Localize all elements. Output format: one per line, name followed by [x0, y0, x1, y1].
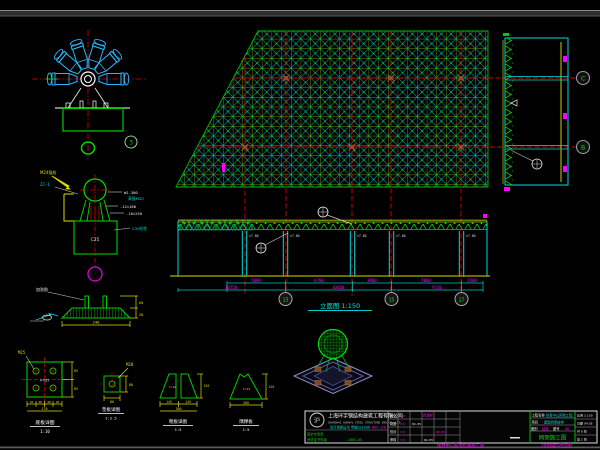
axis-bubble-label: 17 — [458, 298, 464, 304]
detail-scale: 1:5 — [175, 427, 182, 432]
detail-scale: 1:10 — [40, 429, 50, 434]
field-label: 工程名称 — [532, 413, 546, 418]
dim-label: 6700 — [314, 278, 324, 283]
window-bottom-edge — [0, 447, 600, 449]
level-label: ▽7.80 — [290, 234, 300, 238]
plate-center-label: 4-M25 — [40, 379, 50, 383]
drawing-title: 网架施工图 — [539, 434, 567, 442]
gusset-plate-2: t=12 260 120 隅撑板 1:5 — [230, 374, 274, 432]
pad-plate-detail: M20 80 80 垫板详图 1:2.5 — [98, 362, 134, 421]
base-plate-plan: 4-M25 M25 85 85 45 40 40 45 170 底板详图 1:1… — [18, 350, 78, 434]
leader-label: C30砼柱 — [132, 226, 147, 231]
footer-note: 体育中心网架结构施工图 — [437, 442, 484, 449]
window-top-edge — [0, 10, 600, 17]
dim-label: 10750 — [225, 285, 238, 290]
field-value: 结施 — [542, 426, 549, 431]
level-label: ▽7.80 — [466, 234, 476, 238]
dim-label: 120 — [204, 384, 210, 388]
ball-node-render — [319, 330, 348, 359]
thickness-label: t=12 — [169, 385, 176, 389]
field-label: 项目 — [532, 421, 539, 425]
pedestal — [63, 109, 123, 132]
dim-label: 40 — [38, 400, 42, 404]
detail-scale: 1:2.5 — [105, 416, 116, 421]
dim-label: 80 — [110, 400, 114, 404]
dim-label: 40 — [47, 400, 51, 404]
field-value: 体育中心网架工程 — [546, 413, 573, 418]
detail-title: 靴板详图 — [169, 418, 187, 425]
sign-label: 制图 — [390, 421, 396, 426]
pier-label: C25 — [91, 237, 100, 243]
leader-label: M24锚栓 — [40, 169, 57, 175]
footer-note: 2004年5月出图 — [541, 442, 572, 449]
dim-label: 170 — [42, 407, 48, 411]
sheet-info: 共 8 张 — [577, 429, 587, 434]
sign-name: ×× — [400, 430, 406, 434]
logo-glyph: 沪 — [314, 417, 320, 425]
level-label: ▽7.80 — [396, 234, 406, 238]
sign-date: 04.05 — [436, 430, 445, 434]
detail-title: 垫板详图 — [102, 406, 120, 413]
sheet-info: 比例 1:100 — [577, 413, 593, 418]
dim-label: 5800 — [251, 278, 261, 283]
leader-label: -10×250 — [126, 211, 143, 216]
axis-bubbles-right: C B — [577, 72, 590, 154]
dim-label: 300 — [176, 407, 182, 411]
dim-label: 145 — [166, 400, 172, 404]
elevation-title: 立面图 1:150 — [320, 301, 360, 310]
level-label: ▽7.80 — [249, 234, 259, 238]
dim-label: 45 — [56, 400, 60, 404]
thickness-label: t=12 — [243, 387, 250, 391]
field-value: 08 — [565, 427, 569, 431]
dim-label: 145 — [185, 400, 191, 404]
leader-label: M25 — [18, 350, 26, 355]
field-value: 屋面网架结构 — [544, 420, 564, 425]
dim-label: 60 — [139, 301, 143, 305]
cert-no: №04-118 — [372, 426, 386, 430]
support-3d-render — [294, 330, 372, 394]
level-label: ▽7.80 — [357, 234, 367, 238]
dim-label: 120 — [269, 385, 275, 389]
leader-label: 高强M20 — [128, 196, 144, 201]
sheet-info: 日期 04.05 — [577, 421, 593, 426]
cert-text: 设计资质证书 甲级021006 — [330, 425, 370, 430]
dim-label: 85 — [74, 369, 78, 373]
dim-label: 260 — [243, 401, 249, 405]
dim-label: 2100 — [467, 278, 477, 283]
dim-label: 240 — [93, 320, 101, 325]
cad-sheet: C B 3 — [0, 0, 600, 450]
side-section-detail — [503, 33, 568, 191]
sign-name: ×× — [400, 422, 406, 426]
dim-label: 7000 — [421, 278, 431, 283]
title-block: 沪 上海环宇钢结构建筑工程有限公司 SHANGHAI HUANYU STEEL … — [305, 411, 597, 443]
leader-label: -12×180 — [120, 204, 137, 209]
axis-bubble-label: 13 — [282, 298, 288, 304]
sign-name: ×× — [400, 438, 406, 442]
axis-bubble-label: C — [581, 76, 585, 83]
field-label: 图号 — [553, 426, 560, 431]
sign-date: 04.05 — [424, 438, 433, 442]
detail-title: 底板详图 — [35, 419, 54, 426]
detail-title: 隅撑板 — [239, 418, 253, 425]
dim-label: 10600 — [332, 285, 345, 290]
axis-bubble-label: 15 — [388, 298, 394, 304]
sign-date: 04.05 — [412, 422, 421, 426]
leader-label: WJ-300 — [124, 190, 138, 195]
base-plate-side-view: 加劲肋 60 20 240 — [30, 286, 143, 327]
sign-header: 会签栏 — [423, 413, 434, 418]
leader-label: ZJ-1 — [40, 182, 50, 187]
stamp-text: 资质证书甲级 — [307, 437, 327, 442]
stamp-date: 2004.05 — [348, 438, 362, 442]
dim-label: 80 — [129, 383, 133, 387]
dim-label: 3900 — [367, 278, 377, 283]
gusset-plate-1: t=12 145 145 300 120 靴板详图 1:5 — [160, 374, 209, 432]
dim-label: 20 — [139, 313, 143, 317]
leader-label: 加劲肋 — [36, 286, 48, 292]
dim-label: 45 — [30, 400, 34, 404]
field-label: 图别 — [531, 426, 538, 431]
sign-name: ×× — [400, 414, 406, 418]
node-ball — [81, 72, 95, 86]
elevation-view: ▽7.80 ▽7.80 ▽7.80 ▽7.80 ▽7.80 5800 6700 … — [170, 207, 490, 311]
detail-scale: 1:5 — [243, 427, 250, 432]
sign-label: 校对 — [390, 429, 397, 434]
support-detail: C25 M24锚栓 ZJ-1 WJ-300 高强M20 -12×180 -10×… — [40, 169, 147, 281]
dim-label: 9150 — [432, 285, 442, 290]
sign-label: 审核 — [390, 437, 397, 442]
detail-number: 3 — [129, 140, 133, 147]
axis-bubble-label: B — [581, 145, 585, 152]
leader-label: M20 — [126, 362, 134, 367]
sign-label: 设计 — [390, 413, 397, 418]
dim-label: 85 — [74, 387, 78, 391]
ball-node-detail: 3 — [32, 30, 146, 154]
cad-drawing-canvas: C B 3 — [0, 0, 600, 450]
sheet-info: 第 1 张 — [577, 437, 587, 442]
stamp-text: 审定专用章 — [307, 432, 324, 437]
